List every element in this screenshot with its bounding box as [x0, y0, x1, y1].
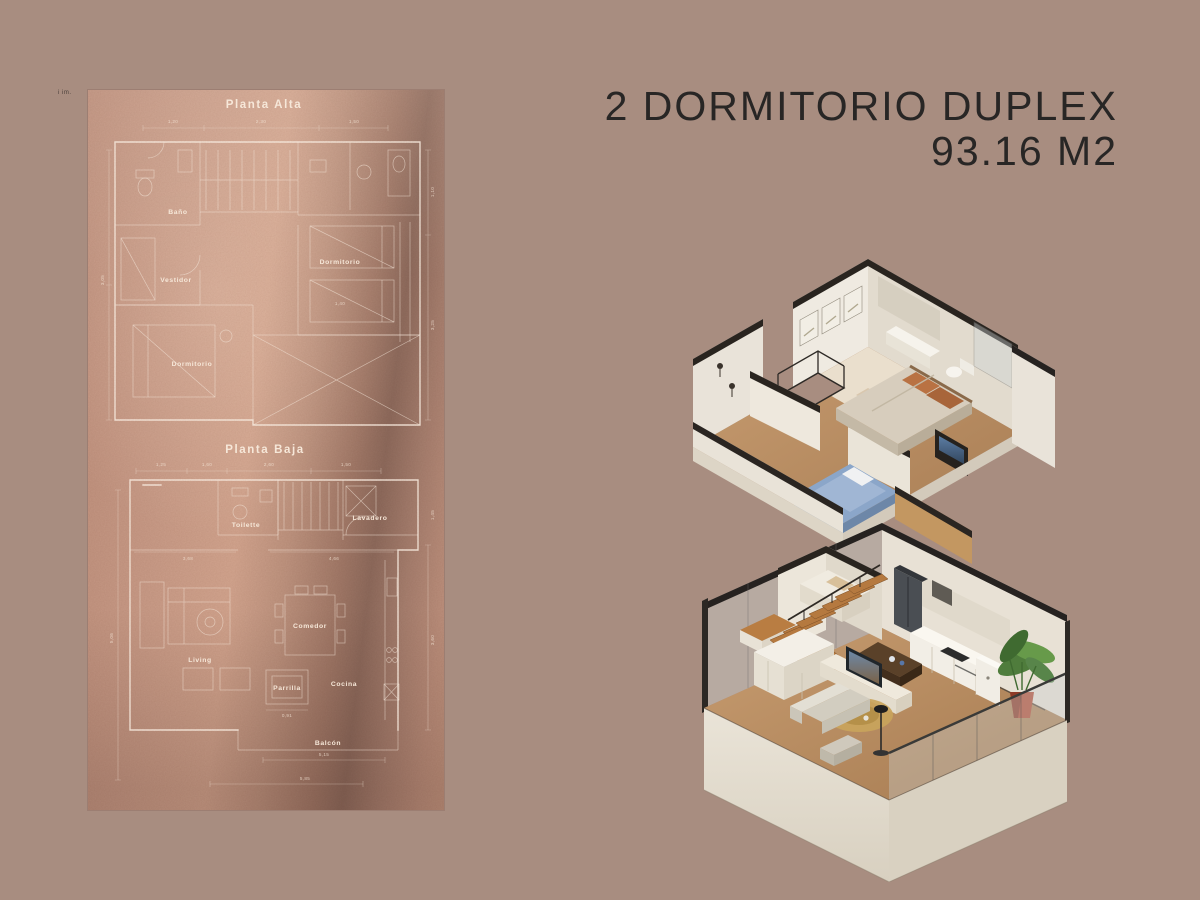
page-subtitle-area: 93.16 M2 — [605, 129, 1118, 174]
plan-alta-dormitorio2-label: Dormitorio — [320, 259, 361, 266]
svg-text:3,60: 3,60 — [430, 635, 435, 645]
plan-baja-kitchen — [384, 560, 399, 720]
slide-background: i im. Planta Alta 1,20 2,30 1,50 — [0, 0, 1200, 900]
svg-text:1,40: 1,40 — [335, 301, 345, 306]
svg-text:5,15: 5,15 — [319, 752, 329, 757]
svg-text:1,10: 1,10 — [430, 187, 435, 197]
plan-alta-bano-label: Baño — [168, 209, 187, 216]
plan-alta-stairs — [200, 150, 298, 212]
plan-alta-dimensions-side: 3,05 1,10 3,25 — [100, 150, 435, 420]
plan-baja-lavadero — [343, 486, 418, 535]
plan-baja-living — [140, 582, 250, 690]
svg-text:1,20: 1,20 — [168, 119, 178, 124]
blueprint-panel: Planta Alta 1,20 2,30 1,50 — [88, 90, 444, 810]
plan-baja-comedor — [275, 586, 345, 655]
svg-text:3,05: 3,05 — [100, 275, 105, 285]
upper-right-wall-panel — [1012, 345, 1055, 468]
svg-text:5,85: 5,85 — [300, 776, 310, 781]
plan-alta-terrace — [253, 335, 420, 425]
plan-baja-comedor-label: Comedor — [293, 623, 327, 630]
plan-baja-balcon-label: Balcón — [315, 740, 341, 747]
plan-baja-dimensions-side: 5,06 1,45 3,60 — [109, 490, 435, 780]
svg-text:3,68: 3,68 — [183, 556, 193, 561]
svg-text:5,06: 5,06 — [109, 633, 114, 643]
svg-text:1,45: 1,45 — [430, 510, 435, 520]
plan-baja: Planta Baja 1,25 1,60 2,60 1,50 — [109, 444, 435, 787]
plan-alta-dimensions-top: 1,20 2,30 1,50 — [143, 119, 388, 131]
plan-alta-vestidor-label: Vestidor — [160, 277, 192, 284]
svg-text:2,60: 2,60 — [264, 462, 274, 467]
render-lower-floor — [670, 510, 1105, 882]
plan-alta-vestidor — [115, 238, 200, 305]
plan-baja-living-label: Living — [188, 657, 212, 664]
floor-plans-drawing: Planta Alta 1,20 2,30 1,50 — [88, 90, 444, 810]
plan-alta: Planta Alta 1,20 2,30 1,50 — [100, 99, 435, 425]
plan-alta-title: Planta Alta — [226, 99, 303, 111]
plan-baja-parrilla: 0,91 — [266, 670, 308, 718]
plan-baja-parrilla-label: Parrilla — [273, 685, 301, 692]
watermark-text: i im. — [58, 90, 72, 96]
svg-text:0,91: 0,91 — [282, 713, 292, 718]
plan-alta-bedroom-right — [298, 222, 420, 342]
plan-alta-bath2 — [298, 142, 420, 215]
plan-baja-dimensions-bottom: 5,15 5,85 — [210, 752, 385, 787]
plan-baja-toilette-label: Toilette — [232, 522, 260, 529]
slide-header: 2 DORMITORIO DUPLEX 93.16 M2 — [605, 84, 1118, 174]
plan-baja-title: Planta Baja — [225, 444, 305, 456]
svg-text:1,50: 1,50 — [349, 119, 359, 124]
svg-text:4,66: 4,66 — [329, 556, 339, 561]
plan-baja-cocina-label: Cocina — [331, 681, 357, 688]
plan-alta-dormitorio1-label: Dormitorio — [172, 361, 213, 368]
svg-text:3,25: 3,25 — [430, 320, 435, 330]
plan-baja-dimensions-top: 1,25 1,60 2,60 1,50 — [136, 462, 381, 474]
svg-text:1,60: 1,60 — [202, 462, 212, 467]
page-title: 2 DORMITORIO DUPLEX — [605, 84, 1118, 129]
plan-baja-stairs — [278, 480, 343, 540]
svg-text:1,50: 1,50 — [341, 462, 351, 467]
plan-baja-mid-wall: 3,68 4,66 — [130, 550, 398, 561]
svg-text:1,25: 1,25 — [156, 462, 166, 467]
svg-text:2,30: 2,30 — [256, 119, 266, 124]
plan-baja-lavadero-label: Lavadero — [352, 515, 387, 522]
